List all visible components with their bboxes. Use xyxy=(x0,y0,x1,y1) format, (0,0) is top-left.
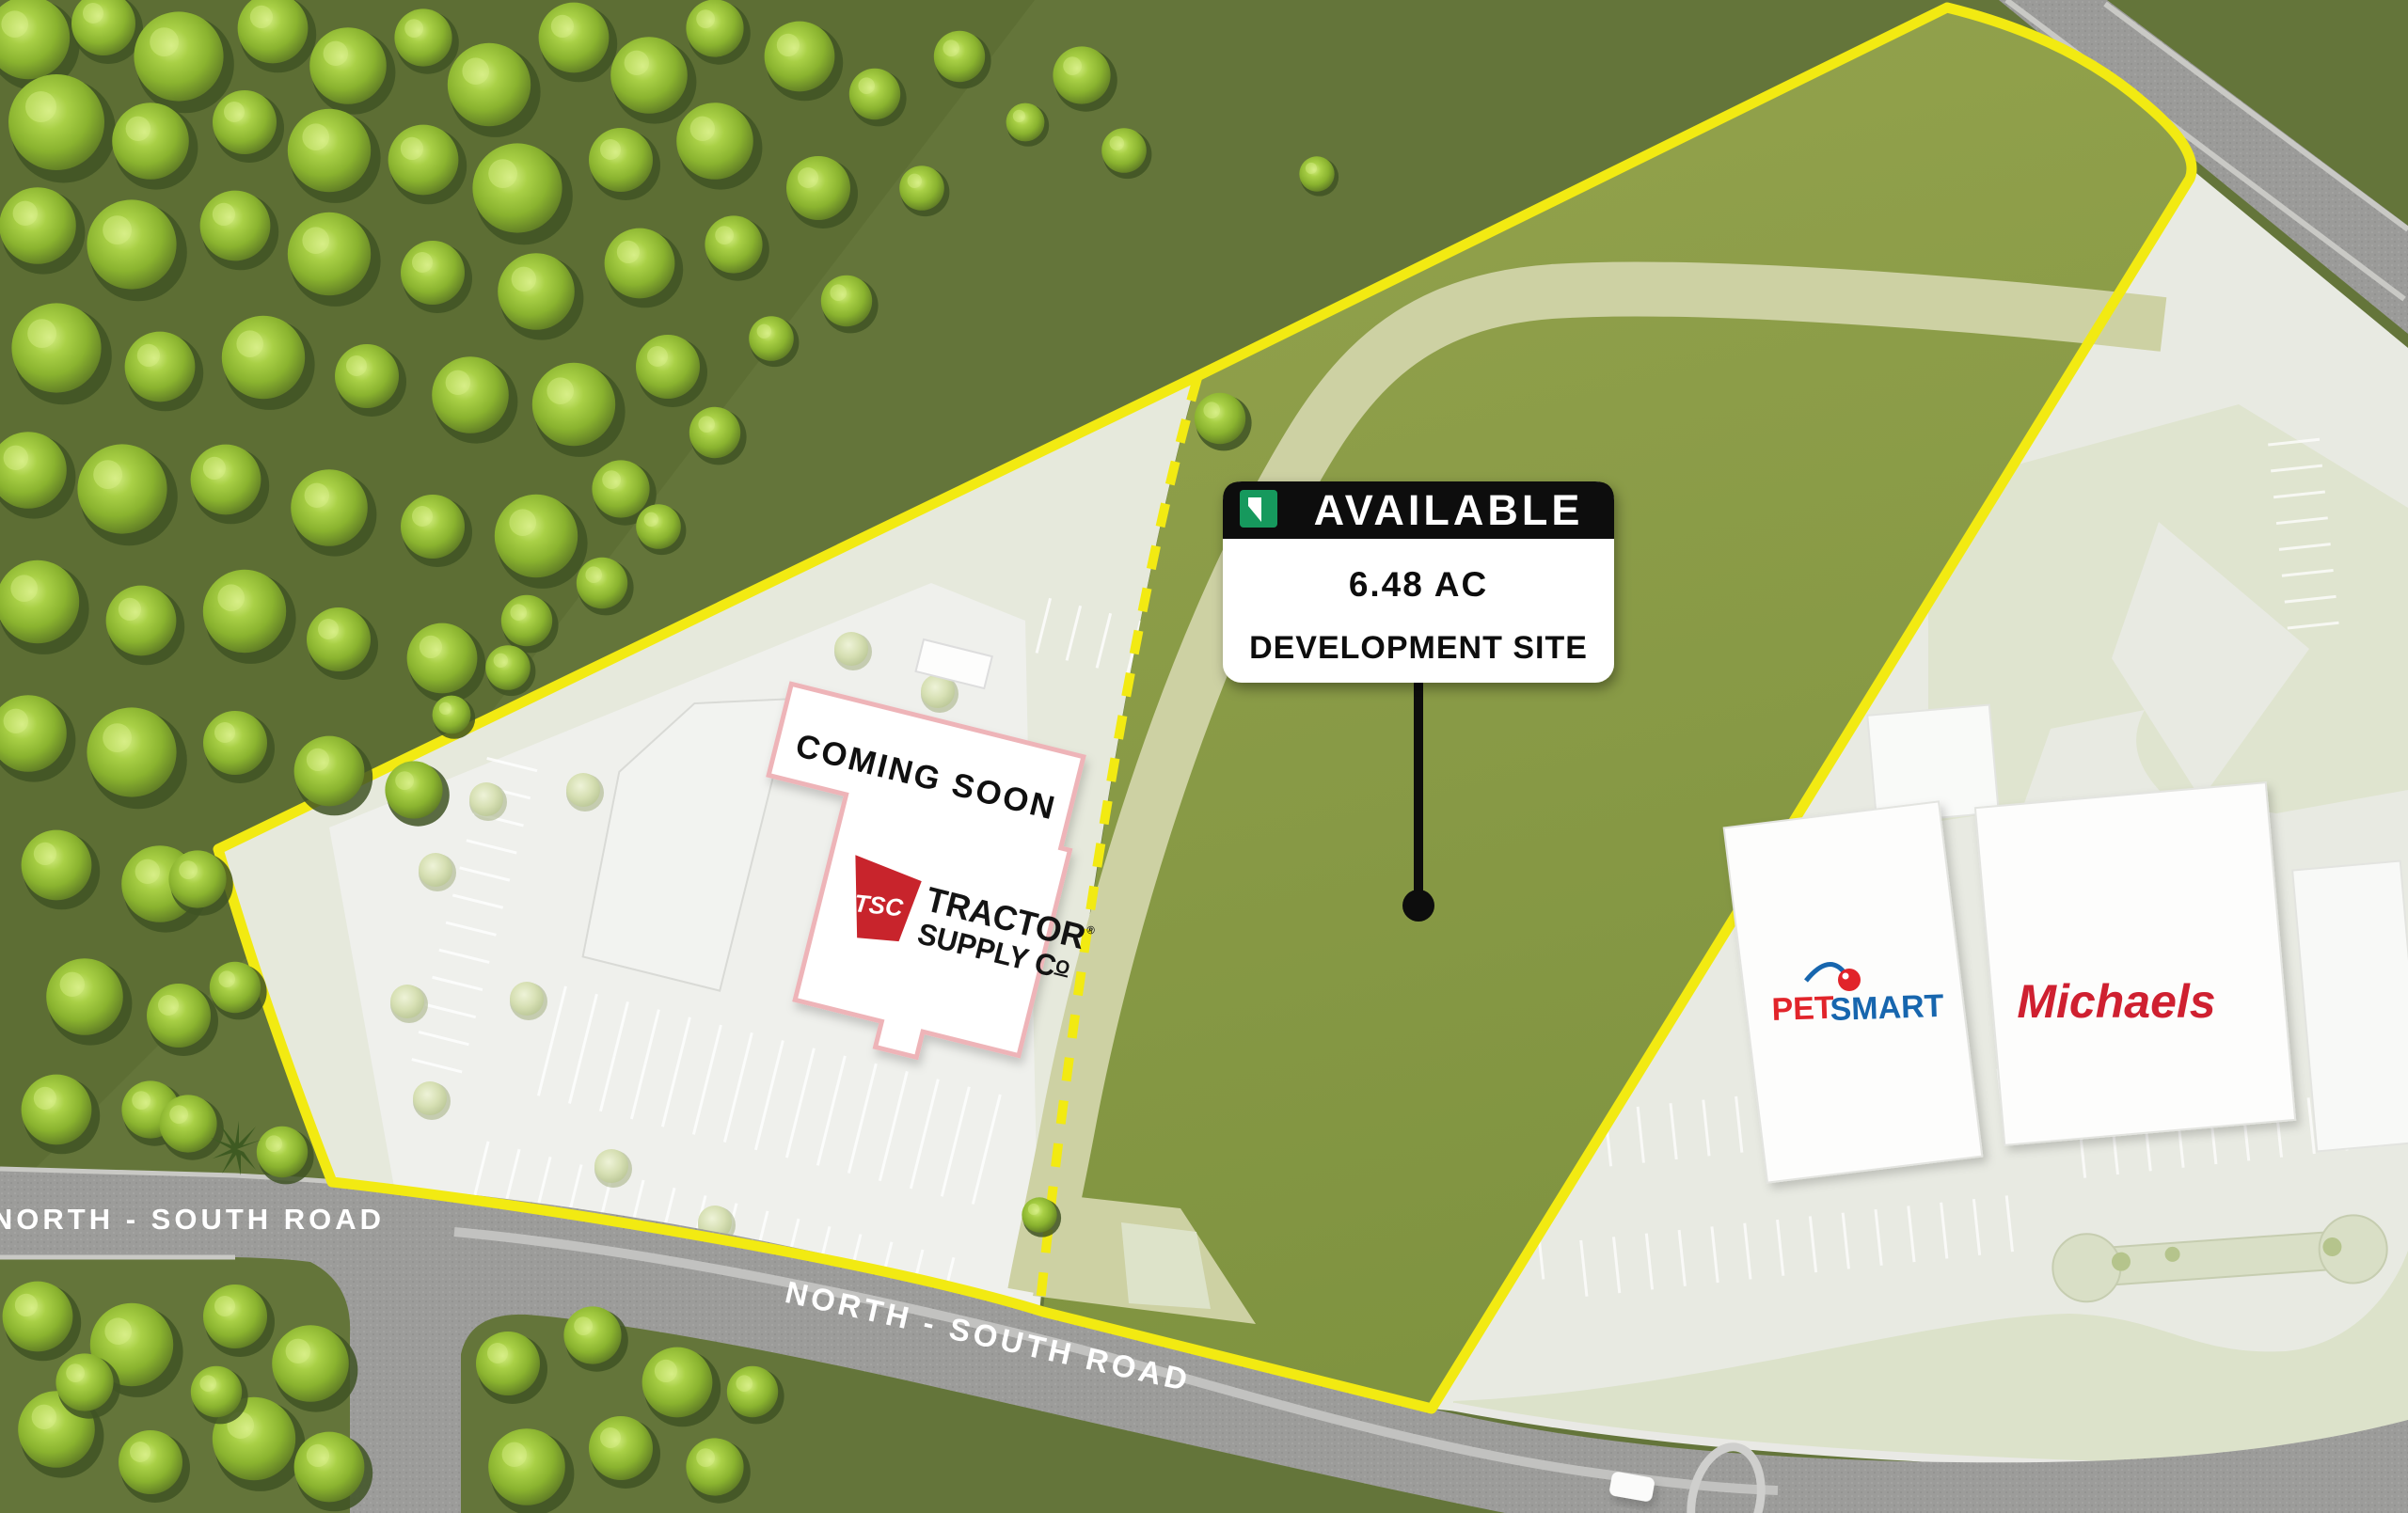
petsmart-ball xyxy=(1838,969,1861,991)
petsmart-wordmark-smart: SMART xyxy=(1830,988,1944,1028)
tsc-abbr: TSC xyxy=(853,889,906,922)
michaels-building xyxy=(1975,782,2295,1145)
sign-anchor-dot xyxy=(1402,890,1434,922)
sign-descriptor: DEVELOPMENT SITE xyxy=(1249,630,1588,666)
map-canvas: COMING SOON TSC TRACTOR® SUPPLY CO PET S… xyxy=(0,0,2408,1513)
site-plan-map: COMING SOON TSC TRACTOR® SUPPLY CO PET S… xyxy=(0,0,2408,1513)
michaels-logo: Michaels xyxy=(2017,975,2215,1028)
petsmart-wordmark-pet: PET xyxy=(1771,990,1835,1028)
sign-badge-label: AVAILABLE xyxy=(1314,486,1584,534)
road-label-west: NORTH - SOUTH ROAD xyxy=(0,1203,385,1236)
sign-area-value: 6.48 AC xyxy=(1349,565,1488,604)
